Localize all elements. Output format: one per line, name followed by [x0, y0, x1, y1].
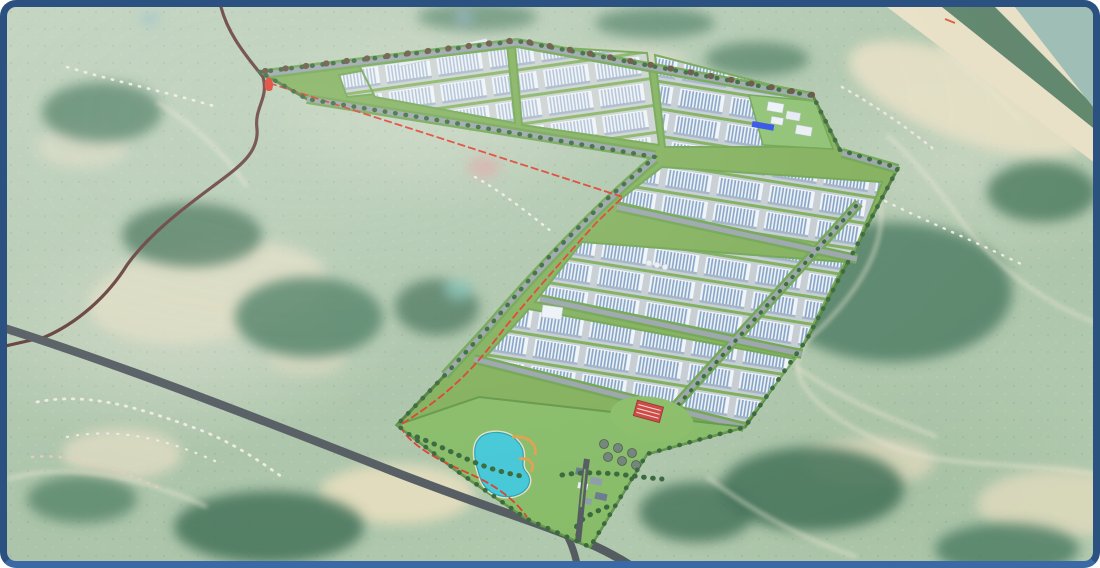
aerial-render-frame [0, 0, 1100, 568]
aerial-render-scene [7, 7, 1100, 568]
haze-overlay [7, 7, 1100, 568]
